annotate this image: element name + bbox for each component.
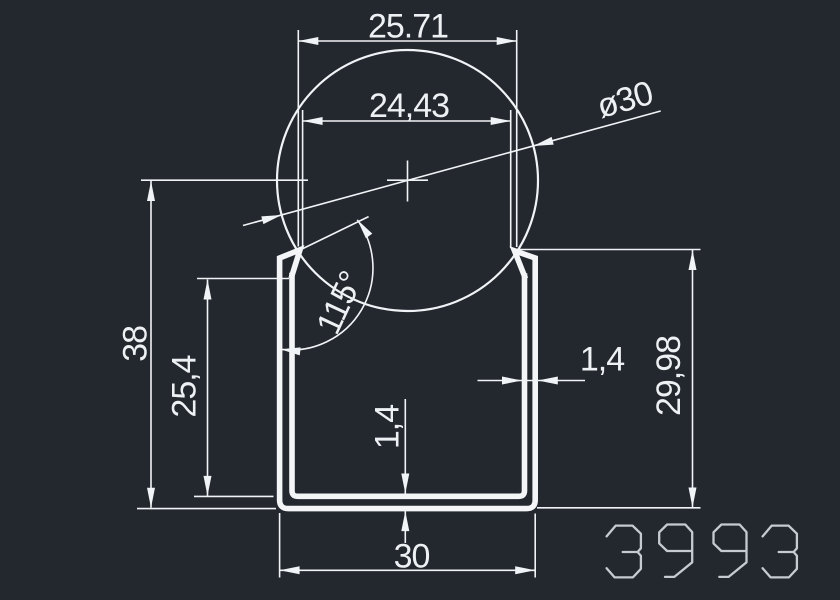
- svg-text:38: 38: [117, 326, 155, 362]
- svg-text:25,4: 25,4: [166, 355, 204, 417]
- svg-text:29,98: 29,98: [650, 336, 688, 416]
- svg-text:25.71: 25.71: [368, 7, 448, 45]
- svg-text:30: 30: [394, 538, 430, 576]
- svg-text:1,4: 1,4: [369, 405, 407, 449]
- svg-text:24,43: 24,43: [369, 87, 449, 125]
- svg-text:1,4: 1,4: [580, 341, 624, 379]
